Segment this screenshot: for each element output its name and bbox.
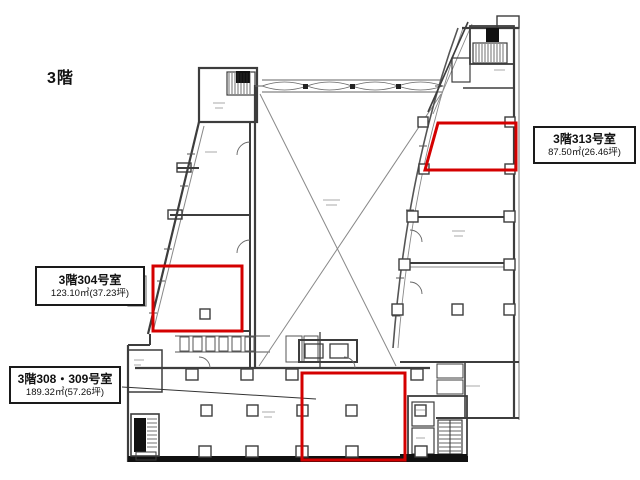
left-wing — [128, 68, 320, 368]
room-313-name: 3階313号室 — [553, 132, 616, 147]
room-304-name: 3階304号室 — [59, 273, 122, 288]
floor-plan-drawing — [0, 0, 640, 480]
elevator-block — [299, 340, 357, 362]
tiny-room-labels — [134, 70, 505, 438]
highlight-room-304 — [153, 266, 242, 331]
leader-line-308 — [122, 387, 316, 399]
atrium-cross — [259, 94, 441, 366]
floor-label: 3階 — [47, 64, 74, 88]
atrium — [255, 80, 443, 366]
room-304-area: 123.10㎡(37.23坪) — [51, 288, 129, 300]
highlight-room-313 — [425, 123, 516, 170]
callout-room-313: 3階313号室 87.50㎡(26.46坪) — [533, 126, 636, 164]
room-308-309-name: 3階308・309号室 — [18, 372, 113, 387]
floor-plan-page: 3階 3階313号室 87.50㎡(26.46坪) 3階304号室 123.10… — [0, 0, 640, 480]
callout-room-308-309: 3階308・309号室 189.32㎡(57.26坪) — [9, 366, 121, 404]
room-308-309-area: 189.32㎡(57.26坪) — [26, 387, 104, 399]
room-313-area: 87.50㎡(26.46坪) — [548, 147, 621, 159]
callout-room-304: 3階304号室 123.10㎡(37.23坪) — [35, 266, 145, 306]
